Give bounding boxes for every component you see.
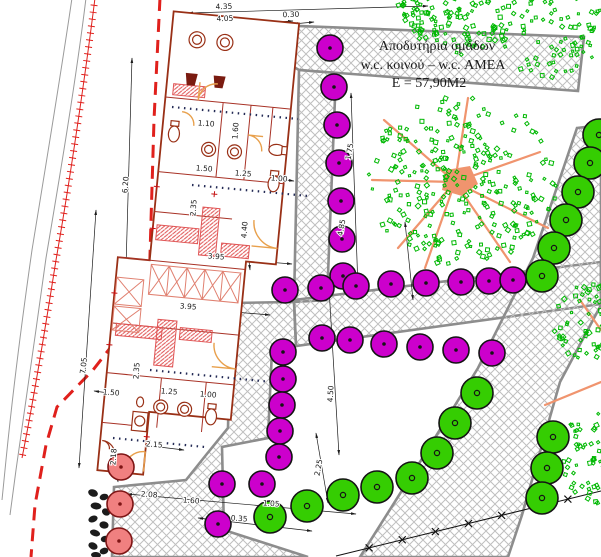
tree-foliage-leaf xyxy=(512,0,517,5)
tree-foliage-leaf xyxy=(451,221,455,225)
tree-foliage-leaf xyxy=(491,211,495,215)
tree-foliage-leaf xyxy=(573,490,577,494)
tree-foliage-leaf xyxy=(433,147,438,152)
tree-foliage-leaf xyxy=(572,471,576,475)
tree-foliage-leaf xyxy=(432,192,435,195)
tree-foliage-leaf xyxy=(439,25,443,29)
tree-foliage-leaf xyxy=(424,183,429,188)
bench xyxy=(179,327,212,342)
dimension-label: 2.35 xyxy=(131,362,141,380)
tree-foliage-leaf xyxy=(479,137,482,140)
tree-foliage-leaf xyxy=(443,96,448,101)
tree-magenta xyxy=(272,277,298,303)
tree-foliage-leaf xyxy=(436,168,439,171)
tree-foliage-leaf xyxy=(501,6,505,10)
dimension-label: 4.35 xyxy=(215,2,232,12)
tree-foliage-leaf xyxy=(593,427,596,430)
tree-foliage-leaf xyxy=(549,0,553,4)
tree-foliage-leaf xyxy=(594,349,597,352)
tree-foliage-leaf xyxy=(455,257,459,261)
tree-foliage-leaf xyxy=(430,138,434,142)
tree-foliage-leaf xyxy=(385,129,388,132)
tree-foliage-leaf xyxy=(597,449,601,453)
tree-green xyxy=(531,452,563,484)
tree-foliage-leaf xyxy=(468,189,472,193)
tree-foliage-leaf xyxy=(500,121,504,125)
tree-foliage-leaf xyxy=(597,412,600,415)
tree-foliage-leaf xyxy=(563,473,567,477)
tree-foliage-leaf xyxy=(470,1,475,6)
tree-magenta xyxy=(500,267,526,293)
tree-green xyxy=(461,377,493,409)
dimension-label: 1.50 xyxy=(103,387,121,397)
tree-foliage-leaf xyxy=(496,9,499,12)
dimension-label: 2.18 xyxy=(108,448,118,466)
tree-foliage-leaf xyxy=(449,135,454,140)
tree-foliage-leaf xyxy=(485,248,489,252)
dimension-label: 1.60 xyxy=(183,495,201,505)
tree-magenta xyxy=(309,325,335,351)
road-edge-line xyxy=(2,0,72,500)
tree-foliage-leaf xyxy=(456,229,460,233)
tree-foliage-leaf xyxy=(585,351,589,355)
tree-foliage-leaf xyxy=(577,423,580,426)
dimension-label: 1.05 xyxy=(263,498,281,508)
tree-foliage-leaf xyxy=(549,161,554,166)
dimension-label: 1.25 xyxy=(161,386,179,396)
tree-foliage-leaf xyxy=(415,184,420,189)
tree-foliage-leaf xyxy=(503,151,507,155)
tree-foliage-leaf xyxy=(387,218,392,223)
tree-foliage-leaf xyxy=(508,22,512,26)
tree-foliage-leaf xyxy=(586,481,589,484)
tree-foliage-leaf xyxy=(400,170,404,174)
tree-foliage-leaf xyxy=(522,31,525,34)
tree-foliage-leaf xyxy=(521,24,525,28)
tree-foliage-leaf xyxy=(499,23,504,28)
tree-foliage-leaf xyxy=(590,56,593,59)
tree-foliage-leaf xyxy=(381,139,384,142)
tree-foliage-leaf xyxy=(476,148,480,152)
tree-foliage-leaf xyxy=(431,210,434,213)
tree-foliage-leaf xyxy=(531,20,533,22)
tree-foliage-leaf xyxy=(465,202,468,205)
tree-foliage-leaf xyxy=(525,121,529,125)
tree-magenta xyxy=(267,418,293,444)
tree-magenta xyxy=(317,35,343,61)
tree-foliage-leaf xyxy=(367,173,370,176)
tree-foliage-leaf xyxy=(512,128,516,132)
tree-foliage-leaf xyxy=(434,24,437,27)
tree-foliage-leaf xyxy=(399,126,402,129)
tree-foliage-leaf xyxy=(447,121,451,125)
tree-foliage-leaf xyxy=(440,203,444,207)
tree-foliage-leaf xyxy=(491,182,495,186)
tree-magenta xyxy=(270,339,296,365)
site-plan-svg: 4.354.050.306.207.051.754.851.101.601.50… xyxy=(0,0,601,557)
tree-foliage-leaf xyxy=(397,208,401,212)
tree-foliage-leaf xyxy=(434,20,437,23)
tree-foliage-leaf xyxy=(429,127,432,130)
tree-foliage-leaf xyxy=(507,4,511,8)
tree-foliage-leaf xyxy=(471,24,476,29)
tree-foliage-leaf xyxy=(505,28,508,31)
dimension-label: 4.40 xyxy=(239,221,249,239)
tree-foliage-leaf xyxy=(443,1,448,6)
dimension-label: 1.60 xyxy=(230,122,240,140)
tree-foliage-leaf xyxy=(427,242,431,246)
tree-foliage-leaf xyxy=(568,25,572,29)
tree-foliage-leaf xyxy=(575,447,579,451)
tree-magenta xyxy=(266,444,292,470)
tree-foliage-leaf xyxy=(500,157,503,160)
tree-foliage-leaf xyxy=(401,212,406,217)
tree-foliage-leaf xyxy=(457,103,460,106)
tree-foliage-leaf xyxy=(454,105,459,110)
tree-foliage-leaf xyxy=(386,138,389,141)
tree-foliage-leaf xyxy=(432,234,436,238)
tree-foliage-leaf xyxy=(371,188,373,190)
tree-foliage-leaf xyxy=(466,13,469,16)
tree-foliage-leaf xyxy=(417,190,422,195)
tree-foliage-leaf xyxy=(450,213,453,216)
tree-foliage-leaf xyxy=(441,100,444,103)
tree-foliage-leaf xyxy=(422,200,426,204)
tree-green xyxy=(574,147,601,179)
tree-foliage-leaf xyxy=(494,146,500,152)
tree-foliage-leaf xyxy=(510,245,514,249)
tree-magenta xyxy=(413,270,439,296)
tree-foliage-leaf xyxy=(577,23,581,27)
tree-foliage-leaf xyxy=(523,28,526,31)
tree-foliage-leaf xyxy=(413,230,416,233)
tree-foliage-leaf xyxy=(470,128,475,133)
tree-magenta xyxy=(270,366,296,392)
tree-foliage-leaf xyxy=(403,165,406,168)
tree-foliage-leaf xyxy=(388,194,391,197)
tree-foliage-leaf xyxy=(589,44,592,47)
tree-foliage-leaf xyxy=(420,119,424,123)
tree-foliage-leaf xyxy=(488,180,491,183)
tree-foliage-leaf xyxy=(573,25,577,29)
dimension-label: 1.10 xyxy=(198,118,216,128)
dimension-label: 3.95 xyxy=(180,301,198,311)
tree-foliage-leaf xyxy=(414,140,417,143)
tree-magenta xyxy=(205,511,231,537)
tree-foliage-leaf xyxy=(420,21,424,25)
tree-foliage-leaf xyxy=(492,223,496,227)
tree-foliage-leaf xyxy=(458,199,461,202)
tree-foliage-leaf xyxy=(543,0,547,4)
tree-foliage-leaf xyxy=(483,143,486,146)
tree-foliage-leaf xyxy=(438,158,442,162)
tree-foliage-leaf xyxy=(463,212,465,214)
tree-foliage-leaf xyxy=(399,194,402,197)
tree-foliage-leaf xyxy=(446,190,451,195)
tree-foliage-leaf xyxy=(549,20,553,24)
tree-magenta xyxy=(249,471,275,497)
dimension-line xyxy=(351,93,358,288)
tree-foliage-leaf xyxy=(430,17,434,21)
tree-foliage-leaf xyxy=(589,442,593,446)
tree-foliage-leaf xyxy=(524,212,527,215)
tree-foliage-leaf xyxy=(574,0,579,1)
dimension-label: 0.30 xyxy=(282,10,299,20)
tree-foliage-leaf xyxy=(530,211,533,214)
tree-foliage-leaf xyxy=(435,260,440,265)
tree-green xyxy=(537,421,569,453)
tree-foliage-leaf xyxy=(463,151,465,153)
tree-green xyxy=(396,462,428,494)
tree-foliage-leaf xyxy=(535,131,538,134)
dimension-label: 1.00 xyxy=(200,389,218,399)
tree-foliage-leaf xyxy=(509,249,514,254)
tree-foliage-leaf xyxy=(445,212,448,215)
tree-foliage-leaf xyxy=(421,170,423,172)
dimension-label: 2.35 xyxy=(188,199,198,217)
dimension-label: 1.25 xyxy=(235,168,253,178)
tree-foliage-leaf xyxy=(587,487,591,491)
tree-foliage-leaf xyxy=(539,196,544,201)
tree-magenta xyxy=(324,112,350,138)
tree-magenta xyxy=(371,331,397,357)
tree-green xyxy=(361,471,393,503)
tree-foliage-leaf xyxy=(394,188,398,192)
tree-green xyxy=(550,204,582,236)
tree-salmon xyxy=(106,528,132,554)
tree-foliage-leaf xyxy=(505,227,510,232)
tree-foliage-leaf xyxy=(469,139,474,144)
tree-foliage-leaf xyxy=(452,241,456,245)
tree-foliage-leaf xyxy=(482,180,485,183)
tree-foliage-leaf xyxy=(482,108,485,111)
tree-foliage-leaf xyxy=(529,178,532,181)
dimension-label: 1.75 xyxy=(344,142,356,160)
site-plan: 4.354.050.306.207.051.754.851.101.601.50… xyxy=(0,0,601,557)
dimension-label: 6.20 xyxy=(120,176,130,194)
tree-foliage-leaf xyxy=(407,202,410,205)
tree-foliage-leaf xyxy=(436,240,441,245)
dimension-label: 2.15 xyxy=(146,439,164,449)
tree-foliage-leaf xyxy=(553,8,557,12)
tree-foliage-leaf xyxy=(495,247,499,251)
tree-foliage-leaf xyxy=(569,485,574,490)
tree-foliage-leaf xyxy=(417,234,420,237)
tree-foliage-leaf xyxy=(498,15,502,19)
tree-foliage-leaf xyxy=(523,114,526,117)
tree-foliage-leaf xyxy=(578,348,581,351)
tree-foliage-leaf xyxy=(592,343,595,346)
tree-foliage-leaf xyxy=(406,218,411,223)
tree-foliage-leaf xyxy=(497,170,500,173)
tree-foliage-leaf xyxy=(514,204,518,208)
tree-foliage-leaf xyxy=(398,153,401,156)
tree-foliage-leaf xyxy=(585,496,590,501)
tree-foliage-leaf xyxy=(519,235,523,239)
tree-green xyxy=(421,437,453,469)
tree-foliage-leaf xyxy=(576,356,579,359)
tree-foliage-leaf xyxy=(500,29,505,34)
tree-foliage-leaf xyxy=(397,223,401,227)
road-edge-line xyxy=(10,0,86,515)
tree-magenta xyxy=(308,275,334,301)
tree-magenta xyxy=(443,337,469,363)
tree-foliage-leaf xyxy=(565,465,569,469)
tree-foliage-leaf xyxy=(545,158,548,161)
tree-foliage-leaf xyxy=(560,18,563,21)
tree-foliage-leaf xyxy=(479,1,483,5)
tree-foliage-leaf xyxy=(534,16,537,19)
tree-foliage-leaf xyxy=(405,127,409,131)
tree-green xyxy=(562,176,594,208)
tree-foliage-leaf xyxy=(446,262,450,266)
tree-magenta xyxy=(476,268,502,294)
tree-foliage-leaf xyxy=(487,253,491,257)
tree-foliage-leaf xyxy=(499,201,504,206)
tree-foliage-leaf xyxy=(493,153,497,157)
tree-foliage-leaf xyxy=(539,139,543,143)
tree-foliage-leaf xyxy=(501,243,506,248)
tree-foliage-leaf xyxy=(520,14,524,18)
bench xyxy=(173,84,206,98)
tree-foliage-leaf xyxy=(474,157,479,162)
tree-foliage-leaf xyxy=(530,232,535,237)
tree-foliage-leaf xyxy=(430,6,434,10)
tree-foliage-leaf xyxy=(425,196,428,199)
tree-magenta xyxy=(209,471,235,497)
tree-magenta xyxy=(479,340,505,366)
tree-foliage-leaf xyxy=(504,185,507,188)
tree-foliage-leaf xyxy=(477,114,481,118)
tree-foliage-leaf xyxy=(517,201,520,204)
tree-magenta xyxy=(328,188,354,214)
tree-foliage-leaf xyxy=(414,246,419,251)
tree-magenta xyxy=(337,327,363,353)
tree-foliage-leaf xyxy=(428,224,431,227)
dimension-label: 3.95 xyxy=(208,251,226,261)
tree-foliage-leaf xyxy=(485,257,489,261)
tree-foliage-leaf xyxy=(433,140,438,145)
tree-foliage-leaf xyxy=(436,129,440,133)
tree-foliage-leaf xyxy=(425,0,431,1)
tree-foliage-leaf xyxy=(424,126,428,130)
tree-foliage-leaf xyxy=(438,108,442,112)
dimension-label: 1.00 xyxy=(271,173,289,183)
tree-foliage-leaf xyxy=(440,200,442,202)
tree-foliage-leaf xyxy=(386,230,388,232)
tree-foliage-leaf xyxy=(594,11,598,15)
tree-foliage-leaf xyxy=(473,154,476,157)
tree-green xyxy=(327,479,359,511)
tree-foliage-leaf xyxy=(481,160,485,164)
tree-foliage-leaf xyxy=(596,328,600,332)
tree-foliage-leaf xyxy=(566,15,570,19)
annotation-line-1: Αποδυτήρια ομάδων xyxy=(379,39,495,54)
tree-foliage-leaf xyxy=(417,196,422,201)
tree-foliage-leaf xyxy=(497,233,502,238)
tree-foliage-leaf xyxy=(589,10,594,15)
tree-foliage-leaf xyxy=(541,18,544,21)
tree-foliage-leaf xyxy=(503,223,508,228)
tree-foliage-leaf xyxy=(441,150,444,153)
tree-foliage-leaf xyxy=(380,222,385,227)
tree-foliage-leaf xyxy=(480,243,483,246)
dimension-line xyxy=(79,210,96,468)
tree-foliage-leaf xyxy=(416,105,419,108)
tree-foliage-leaf xyxy=(485,146,489,150)
tree-foliage-leaf xyxy=(398,158,402,162)
tree-foliage-leaf xyxy=(388,132,391,135)
tree-foliage-leaf xyxy=(470,96,474,100)
tree-foliage-leaf xyxy=(422,241,426,245)
tree-green xyxy=(526,482,558,514)
dimension-label: 7.05 xyxy=(78,357,89,375)
tree-foliage-leaf xyxy=(463,25,468,30)
tree-foliage-leaf xyxy=(572,481,576,485)
tree-foliage-leaf xyxy=(526,10,529,13)
tree-foliage-leaf xyxy=(420,11,424,15)
tree-foliage-leaf xyxy=(486,112,491,117)
tree-foliage-leaf xyxy=(550,12,553,15)
annotation-line-2: w.c. κοινού – w.c. ΑΜΕΑ xyxy=(361,58,507,73)
tree-foliage-leaf xyxy=(439,237,444,242)
tree-foliage-leaf xyxy=(527,221,532,226)
tree-green xyxy=(538,232,570,264)
tree-magenta xyxy=(343,273,369,299)
tree-foliage-leaf xyxy=(415,203,421,209)
tree-foliage-leaf xyxy=(413,170,416,173)
tree-foliage-leaf xyxy=(587,23,591,27)
tree-magenta xyxy=(407,334,433,360)
tree-foliage-leaf xyxy=(398,138,402,142)
tree-foliage-leaf xyxy=(574,434,578,438)
tree-foliage-leaf xyxy=(582,446,585,449)
tree-foliage-leaf xyxy=(456,16,458,18)
tree-foliage-leaf xyxy=(471,144,474,147)
dimension-label: 0.35 xyxy=(231,513,249,523)
tree-foliage-leaf xyxy=(554,184,557,187)
tree-foliage-leaf xyxy=(514,114,518,118)
tree-foliage-leaf xyxy=(575,464,577,466)
tree-foliage-leaf xyxy=(434,244,437,247)
tree-foliage-leaf xyxy=(518,187,522,191)
tree-foliage-leaf xyxy=(408,243,412,247)
walkway-side-strip xyxy=(294,70,336,302)
tree-foliage-leaf xyxy=(531,193,535,197)
tree-foliage-leaf xyxy=(374,158,379,163)
tree-foliage-leaf xyxy=(452,115,457,120)
tree-foliage-leaf xyxy=(424,209,428,213)
tree-foliage-leaf xyxy=(580,484,585,489)
tree-foliage-leaf xyxy=(543,177,546,180)
tree-foliage-leaf xyxy=(484,173,488,177)
tree-foliage-leaf xyxy=(487,189,491,193)
tree-foliage-leaf xyxy=(467,209,470,212)
tree-foliage-leaf xyxy=(530,129,535,134)
tree-foliage-leaf xyxy=(453,0,456,1)
tree-green xyxy=(291,490,323,522)
tree-foliage-leaf xyxy=(446,21,451,26)
tree-foliage-leaf xyxy=(474,185,477,188)
bench xyxy=(154,319,177,367)
tree-foliage-leaf xyxy=(594,354,599,359)
tree-salmon xyxy=(107,491,133,517)
tree-foliage-leaf xyxy=(527,173,531,177)
tree-foliage-leaf xyxy=(526,191,529,194)
tree-foliage-leaf xyxy=(455,122,460,127)
dimension-label: 2.08 xyxy=(141,489,159,499)
dimension-label: 4.50 xyxy=(326,385,336,402)
